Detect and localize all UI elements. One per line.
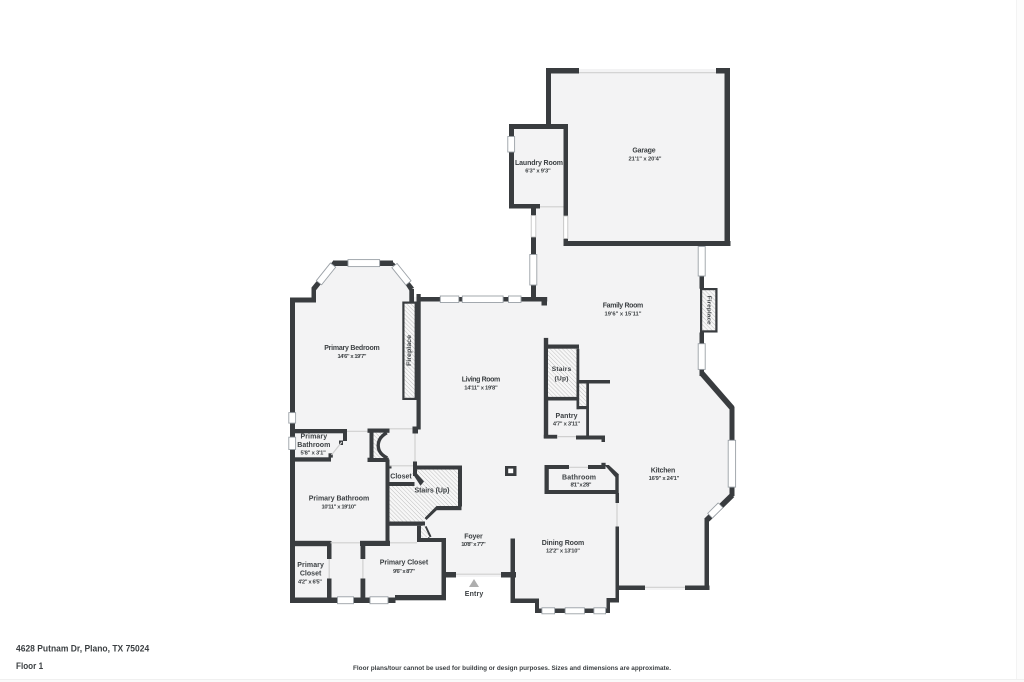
svg-text:Primary Closet: Primary Closet bbox=[380, 560, 429, 567]
svg-text:Primary: Primary bbox=[297, 562, 324, 569]
svg-text:16'9" x 24'1": 16'9" x 24'1" bbox=[649, 476, 680, 482]
svg-text:Kitchen: Kitchen bbox=[651, 468, 676, 475]
svg-text:4'2" x 6'5": 4'2" x 6'5" bbox=[298, 580, 322, 586]
svg-text:4'7" x 3'11": 4'7" x 3'11" bbox=[553, 422, 581, 428]
svg-text:Bathroom: Bathroom bbox=[297, 442, 330, 449]
svg-text:Pantry: Pantry bbox=[556, 413, 578, 420]
svg-text:Floor plans/tour cannot be use: Floor plans/tour cannot be used for buil… bbox=[353, 665, 671, 672]
svg-text:10'11" x 19'10": 10'11" x 19'10" bbox=[322, 505, 357, 511]
svg-text:Floor 1: Floor 1 bbox=[16, 661, 43, 671]
svg-text:10'8" x 7'7": 10'8" x 7'7" bbox=[461, 542, 486, 548]
svg-text:Foyer: Foyer bbox=[464, 533, 483, 540]
svg-text:Primary: Primary bbox=[301, 434, 328, 441]
svg-text:21'1" x 20'4": 21'1" x 20'4" bbox=[629, 157, 662, 163]
svg-text:12'2" x 13'10": 12'2" x 13'10" bbox=[546, 549, 580, 555]
svg-text:Entry: Entry bbox=[465, 591, 484, 598]
svg-text:19'6" x 15'11": 19'6" x 15'11" bbox=[605, 312, 642, 318]
svg-text:Closet: Closet bbox=[390, 474, 412, 481]
svg-text:6'3" x 9'3": 6'3" x 9'3" bbox=[525, 169, 551, 175]
svg-text:Primary Bedroom: Primary Bedroom bbox=[324, 345, 380, 352]
svg-text:(Up): (Up) bbox=[555, 376, 569, 383]
svg-text:Bathroom: Bathroom bbox=[562, 475, 596, 482]
svg-text:Fireplace: Fireplace bbox=[406, 334, 413, 366]
svg-text:4628 Putnam Dr, Plano, TX 7502: 4628 Putnam Dr, Plano, TX 75024 bbox=[16, 644, 150, 654]
svg-text:Stairs (Up): Stairs (Up) bbox=[415, 488, 450, 495]
svg-text:14'11" x 19'8": 14'11" x 19'8" bbox=[464, 386, 498, 392]
svg-text:9'6" x 8'7": 9'6" x 8'7" bbox=[393, 569, 415, 575]
svg-text:Living Room: Living Room bbox=[462, 377, 501, 384]
svg-text:Family Room: Family Room bbox=[603, 303, 644, 310]
svg-text:14'6" x 19'7": 14'6" x 19'7" bbox=[338, 354, 367, 360]
svg-text:Dining Room: Dining Room bbox=[542, 540, 585, 547]
svg-text:Garage: Garage bbox=[632, 148, 655, 155]
svg-text:Closet: Closet bbox=[300, 571, 322, 578]
svg-text:8'1" x 2'8": 8'1" x 2'8" bbox=[571, 483, 592, 489]
svg-text:Primary Bathroom: Primary Bathroom bbox=[309, 496, 370, 503]
svg-text:Fireplace: Fireplace bbox=[706, 296, 712, 325]
svg-text:Laundry Room: Laundry Room bbox=[515, 160, 563, 167]
svg-text:Stairs: Stairs bbox=[552, 366, 572, 373]
svg-text:5'8" x 3'1": 5'8" x 3'1" bbox=[301, 451, 327, 457]
